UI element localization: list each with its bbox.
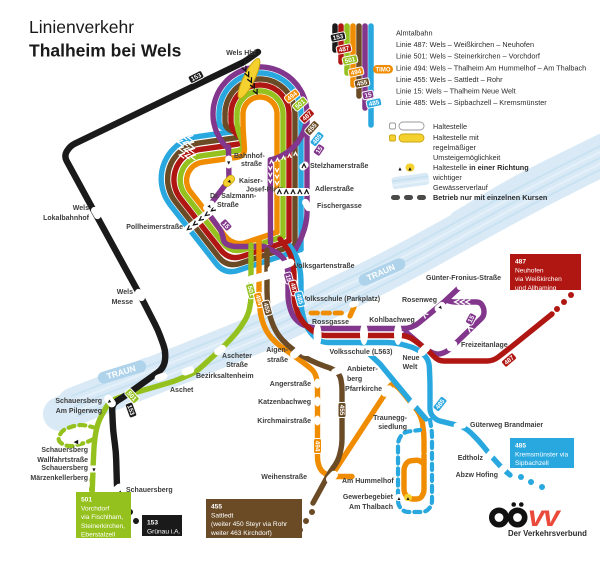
svg-text:Aschet: Aschet	[170, 387, 194, 394]
svg-text:Am Hummelhof: Am Hummelhof	[342, 478, 394, 485]
svg-text:Linie 494: Wels – Thalheim Am: Linie 494: Wels – Thalheim Am Hummelhof …	[396, 63, 586, 72]
svg-text:▲: ▲	[407, 166, 412, 172]
svg-text:wichtiger: wichtiger	[432, 173, 462, 182]
svg-text:Anbieter-: Anbieter-	[347, 366, 378, 373]
svg-text:Bezirksaltenheim: Bezirksaltenheim	[196, 373, 254, 380]
svg-text:Sattledt: Sattledt	[211, 512, 234, 519]
svg-text:Aigen-: Aigen-	[266, 347, 288, 354]
svg-text:Linie 455: Wels – Sattledt – R: Linie 455: Wels – Sattledt – Rohr	[396, 75, 503, 84]
svg-text:Pfarrkirche: Pfarrkirche	[345, 386, 382, 393]
svg-text:Linie 15: Wels – Thalheim Neue: Linie 15: Wels – Thalheim Neue Welt	[396, 87, 516, 96]
svg-text:Abzw Hofing: Abzw Hofing	[456, 472, 498, 479]
svg-text:Wels: Wels	[73, 205, 89, 212]
svg-text:Am Pilgerweg: Am Pilgerweg	[56, 408, 102, 415]
svg-text:Messe: Messe	[112, 299, 134, 306]
svg-text:Günter-Fronius-Straße: Günter-Fronius-Straße	[426, 275, 501, 282]
svg-text:Betrieb nur mit einzelnen Kurs: Betrieb nur mit einzelnen Kursen	[433, 193, 547, 202]
svg-text:berg: berg	[347, 376, 362, 383]
svg-text:Kremsmünster via: Kremsmünster via	[515, 451, 568, 458]
svg-text:Wels Hbf: Wels Hbf	[226, 50, 256, 57]
svg-text:153: 153	[147, 520, 158, 527]
svg-text:Gewerbegebiet: Gewerbegebiet	[343, 494, 394, 501]
svg-text:Schauersberg: Schauersberg	[126, 487, 173, 494]
svg-text:Volksgartenstraße: Volksgartenstraße	[294, 263, 355, 270]
svg-text:▼: ▼	[226, 161, 231, 167]
svg-text:Steinerkirchen,: Steinerkirchen,	[81, 523, 125, 530]
svg-text:▲: ▲	[397, 496, 402, 502]
svg-text:Weihenstraße: Weihenstraße	[261, 474, 307, 481]
svg-text:via Weißkirchen: via Weißkirchen	[515, 276, 562, 283]
svg-text:Dr. Salzmann-: Dr. Salzmann-	[210, 193, 257, 200]
svg-text:Sipbachzell: Sipbachzell	[515, 460, 549, 467]
svg-text:Vorchdorf: Vorchdorf	[81, 505, 109, 512]
svg-text:Pollheimerstraße: Pollheimerstraße	[126, 224, 183, 231]
svg-text:Traunegg-: Traunegg-	[373, 415, 408, 422]
svg-text:Freizeitanlage: Freizeitanlage	[461, 342, 508, 349]
svg-text:Straße: Straße	[217, 202, 239, 209]
svg-text:Schauersberg: Schauersberg	[55, 398, 102, 405]
svg-text:Gewässerverlauf: Gewässerverlauf	[433, 183, 489, 192]
svg-text:straße: straße	[267, 357, 288, 364]
svg-text:Fischergasse: Fischergasse	[317, 203, 362, 210]
svg-text:Wallfahrtstraße: Wallfahrtstraße	[37, 457, 88, 464]
svg-text:Edtholz: Edtholz	[458, 455, 484, 462]
svg-text:straße: straße	[241, 161, 262, 168]
svg-text:Linie 485: Wels – Sipbachzell: Linie 485: Wels – Sipbachzell – Kremsmün…	[396, 98, 547, 107]
svg-text:Schauersberg: Schauersberg	[41, 447, 88, 454]
svg-text:und Allhaming: und Allhaming	[515, 285, 557, 292]
svg-text:◀: ◀	[73, 439, 79, 446]
svg-text:Straße: Straße	[226, 362, 248, 369]
svg-text:501: 501	[81, 497, 92, 504]
svg-text:Schauersberg: Schauersberg	[41, 465, 88, 472]
svg-text:Haltestelle: Haltestelle	[433, 122, 467, 131]
svg-text:Kohlbachweg: Kohlbachweg	[369, 317, 415, 324]
svg-text:(weiter 450 Steyr via Rohr: (weiter 450 Steyr via Rohr	[211, 521, 288, 528]
svg-text:Eberstalzell: Eberstalzell	[81, 532, 116, 539]
svg-text:Volksschule (Parkplatz): Volksschule (Parkplatz)	[302, 296, 380, 303]
svg-text:Wels: Wels	[117, 289, 133, 296]
svg-text:455: 455	[338, 405, 345, 416]
svg-text:regelmäßiger: regelmäßiger	[433, 143, 477, 152]
svg-text:Linie 487: Wels – Weißkirchen: Linie 487: Wels – Weißkirchen – Neuhofen	[396, 40, 534, 49]
svg-text:Neuhofen: Neuhofen	[515, 267, 544, 274]
svg-text:Linie 501: Wels – Steinerkirch: Linie 501: Wels – Steinerkirchen – Vorch…	[396, 52, 541, 61]
svg-text:Kirchmairstraße: Kirchmairstraße	[257, 418, 311, 425]
svg-text:▲: ▲	[397, 166, 402, 172]
svg-text:Katzenbachweg: Katzenbachweg	[258, 399, 311, 406]
svg-text:Lokalbahnhof: Lokalbahnhof	[43, 215, 90, 222]
svg-text:weiter 463 Kirchdorf): weiter 463 Kirchdorf)	[210, 530, 272, 537]
svg-text:Der Verkehrsverbund: Der Verkehrsverbund	[508, 529, 587, 538]
svg-text:via Fischlham,: via Fischlham,	[81, 514, 123, 521]
svg-text:Bahnhof-: Bahnhof-	[234, 153, 265, 160]
svg-text:485: 485	[515, 443, 526, 450]
svg-text:Märzenkellerberg: Märzenkellerberg	[30, 475, 88, 482]
svg-text:▲: ▲	[406, 496, 411, 502]
svg-text:Rosenweg: Rosenweg	[402, 297, 437, 304]
svg-text:494: 494	[313, 441, 320, 452]
svg-text:Güterweg Brandmaier: Güterweg Brandmaier	[470, 422, 543, 429]
svg-text:Linienverkehr: Linienverkehr	[29, 17, 134, 37]
svg-text:TIMO: TIMO	[376, 67, 391, 73]
svg-text:487: 487	[515, 259, 526, 266]
svg-text:Rossgasse: Rossgasse	[312, 319, 349, 326]
svg-text:Stelzhamerstraße: Stelzhamerstraße	[310, 163, 368, 170]
svg-text:Am Thalbach: Am Thalbach	[349, 504, 393, 511]
svg-text:Kaiser-: Kaiser-	[239, 178, 263, 185]
svg-text:Umsteigemöglichkeit: Umsteigemöglichkeit	[433, 153, 500, 162]
svg-text:Neue: Neue	[402, 355, 419, 362]
svg-text:Ascheter: Ascheter	[222, 353, 252, 360]
svg-text:Adlerstraße: Adlerstraße	[315, 186, 354, 193]
svg-text:455: 455	[211, 504, 222, 511]
svg-text:Haltestelle mit: Haltestelle mit	[433, 133, 479, 142]
svg-text:Thalheim bei Wels: Thalheim bei Wels	[29, 41, 182, 61]
svg-text:▼: ▼	[91, 468, 96, 474]
svg-text:siedlung: siedlung	[378, 424, 407, 431]
svg-text:Grünau i.A.: Grünau i.A.	[147, 528, 181, 535]
svg-text:Almtalbahn: Almtalbahn	[396, 29, 433, 38]
svg-text:Welt: Welt	[403, 364, 418, 371]
svg-text:Angerstraße: Angerstraße	[270, 381, 311, 388]
svg-text:Haltestelle in einer Richtung: Haltestelle in einer Richtung	[433, 163, 529, 172]
svg-text:Volksschule (L563): Volksschule (L563)	[330, 349, 393, 356]
